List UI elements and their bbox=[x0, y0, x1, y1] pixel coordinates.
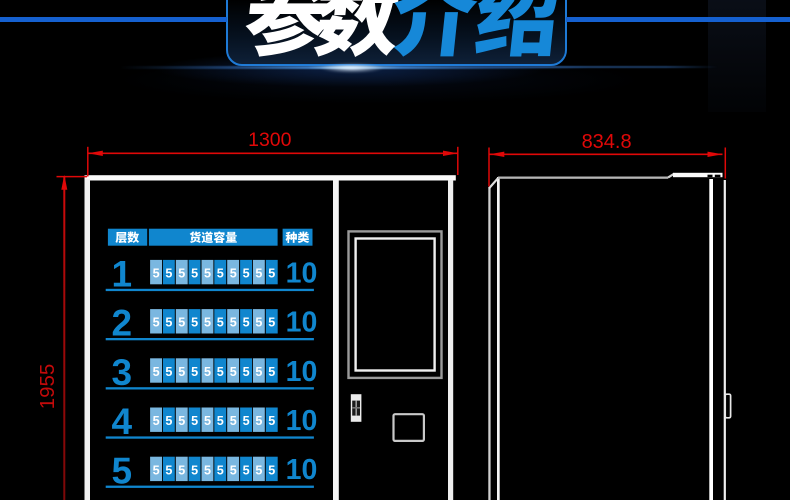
svg-text:5: 5 bbox=[204, 414, 211, 428]
svg-text:10: 10 bbox=[286, 356, 318, 388]
svg-text:5: 5 bbox=[255, 267, 262, 281]
svg-text:5: 5 bbox=[204, 365, 211, 379]
svg-text:5: 5 bbox=[230, 365, 237, 379]
svg-text:5: 5 bbox=[243, 414, 250, 428]
svg-text:10: 10 bbox=[286, 307, 318, 339]
svg-text:5: 5 bbox=[153, 463, 160, 477]
svg-text:5: 5 bbox=[243, 463, 250, 477]
svg-text:5: 5 bbox=[204, 316, 211, 330]
svg-text:5: 5 bbox=[268, 414, 275, 428]
svg-text:10: 10 bbox=[286, 257, 318, 289]
svg-text:5: 5 bbox=[191, 365, 198, 379]
svg-text:5: 5 bbox=[178, 365, 185, 379]
svg-text:5: 5 bbox=[153, 267, 160, 281]
svg-text:5: 5 bbox=[243, 365, 250, 379]
svg-text:5: 5 bbox=[217, 316, 224, 330]
svg-text:5: 5 bbox=[255, 316, 262, 330]
svg-text:5: 5 bbox=[191, 414, 198, 428]
svg-text:5: 5 bbox=[255, 463, 262, 477]
svg-text:5: 5 bbox=[178, 463, 185, 477]
svg-text:2: 2 bbox=[112, 303, 133, 344]
svg-text:5: 5 bbox=[230, 316, 237, 330]
svg-text:5: 5 bbox=[268, 365, 275, 379]
svg-text:5: 5 bbox=[217, 463, 224, 477]
svg-text:5: 5 bbox=[268, 463, 275, 477]
svg-text:5: 5 bbox=[230, 463, 237, 477]
svg-text:1300: 1300 bbox=[248, 129, 292, 151]
svg-text:5: 5 bbox=[217, 414, 224, 428]
svg-text:5: 5 bbox=[178, 316, 185, 330]
svg-text:5: 5 bbox=[204, 267, 211, 281]
svg-text:5: 5 bbox=[204, 463, 211, 477]
svg-text:5: 5 bbox=[243, 267, 250, 281]
svg-text:5: 5 bbox=[217, 267, 224, 281]
svg-text:834.8: 834.8 bbox=[582, 131, 632, 153]
svg-text:5: 5 bbox=[178, 267, 185, 281]
svg-text:10: 10 bbox=[286, 454, 318, 486]
svg-text:5: 5 bbox=[153, 365, 160, 379]
svg-text:10: 10 bbox=[286, 405, 318, 437]
svg-text:5: 5 bbox=[191, 267, 198, 281]
svg-text:5: 5 bbox=[230, 414, 237, 428]
svg-text:5: 5 bbox=[217, 365, 224, 379]
svg-text:5: 5 bbox=[165, 316, 172, 330]
svg-text:5: 5 bbox=[153, 414, 160, 428]
svg-text:5: 5 bbox=[165, 463, 172, 477]
svg-text:4: 4 bbox=[112, 401, 133, 442]
svg-text:5: 5 bbox=[153, 316, 160, 330]
svg-text:5: 5 bbox=[255, 414, 262, 428]
svg-text:5: 5 bbox=[230, 267, 237, 281]
svg-text:5: 5 bbox=[165, 414, 172, 428]
svg-text:5: 5 bbox=[165, 365, 172, 379]
svg-text:5: 5 bbox=[191, 316, 198, 330]
svg-text:1955: 1955 bbox=[36, 364, 59, 410]
svg-text:5: 5 bbox=[191, 463, 198, 477]
svg-text:5: 5 bbox=[268, 267, 275, 281]
svg-text:5: 5 bbox=[268, 316, 275, 330]
svg-text:1: 1 bbox=[112, 254, 133, 295]
svg-text:5: 5 bbox=[243, 316, 250, 330]
svg-text:5: 5 bbox=[165, 267, 172, 281]
svg-text:5: 5 bbox=[255, 365, 262, 379]
svg-text:5: 5 bbox=[112, 450, 133, 491]
svg-text:5: 5 bbox=[178, 414, 185, 428]
svg-text:3: 3 bbox=[112, 352, 133, 393]
